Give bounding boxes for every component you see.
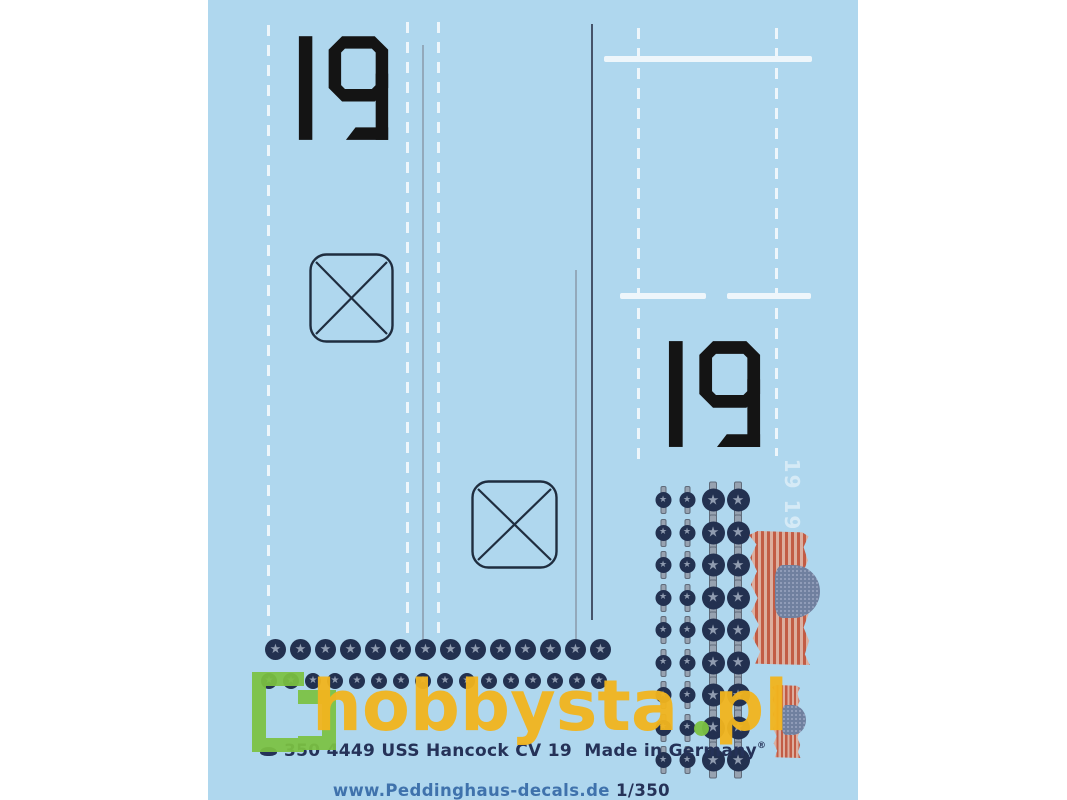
insignia-star-disc: ★: [702, 489, 725, 512]
star-insignia: ★: [315, 639, 336, 660]
deck-dashed-line-center-1: [406, 22, 409, 640]
insignia-star-disc: ★: [702, 619, 725, 642]
insignia-star-disc: ★: [727, 521, 750, 544]
star-insignia: ★: [540, 639, 561, 660]
star-insignia: ★: [365, 639, 386, 660]
star-insignia: ★: [265, 639, 286, 660]
deck-solid-line-long: [591, 24, 593, 620]
product-image-canvas: 19 19 ★★★★★★★★★★★★★★ ★★★★★★★★★★★★★★★★ ★★…: [0, 0, 1067, 800]
star-insignia: ★: [440, 639, 461, 660]
national-insignia-small: ★: [655, 551, 672, 579]
deck-dashed-line-right-1: [637, 28, 640, 466]
national-insignia-small: ★: [679, 551, 696, 579]
deck-white-bar-top: [604, 56, 812, 62]
national-insignia-large: ★: [701, 482, 725, 519]
deck-white-bar-mid-left: [620, 293, 706, 299]
insignia-star-disc: ★: [679, 622, 695, 638]
national-insignia-large: ★: [726, 612, 750, 649]
star-insignia: ★: [590, 639, 611, 660]
insignia-star-disc: ★: [679, 590, 695, 606]
insignia-star-disc: ★: [702, 521, 725, 544]
deck-dashed-line-center-2: [437, 22, 440, 640]
footer-scale-text: 1/350: [616, 781, 670, 800]
bracket-left-icon: [252, 672, 304, 752]
deck-dashed-line-right-2: [775, 28, 778, 456]
national-insignia-small: ★: [679, 616, 696, 644]
insignia-star-disc: ★: [727, 489, 750, 512]
star-insignia: ★: [565, 639, 586, 660]
watermark-brand-text: hobbysta: [312, 668, 678, 744]
national-insignia-large: ★: [726, 547, 750, 584]
national-insignia-small: ★: [679, 486, 696, 514]
star-insignia: ★: [490, 639, 511, 660]
star-strip-large: ★★★★★★★★★★★★★★: [265, 639, 611, 660]
hobbysta-watermark: hobbysta pl: [312, 668, 788, 744]
national-insignia-large: ★: [701, 547, 725, 584]
insignia-star-disc: ★: [727, 586, 750, 609]
us-flag-large: [749, 531, 811, 665]
insignia-star-disc: ★: [727, 619, 750, 642]
national-insignia-large: ★: [701, 579, 725, 616]
insignia-star-disc: ★: [655, 590, 671, 606]
watermark-tld-text: pl: [714, 668, 788, 744]
elevator-cross-box-top: [309, 253, 394, 343]
deck-dashed-line-left: [267, 25, 270, 660]
deck-solid-line-mid: [575, 270, 577, 640]
insignia-star-disc: ★: [655, 492, 671, 508]
hull-numeral-19-right: [666, 338, 764, 452]
national-insignia-large: ★: [726, 579, 750, 616]
watermark-dot-icon: [694, 721, 709, 736]
insignia-star-disc: ★: [679, 492, 695, 508]
national-insignia-large: ★: [701, 514, 725, 551]
insignia-star-disc: ★: [679, 557, 695, 573]
insignia-star-disc: ★: [655, 622, 671, 638]
national-insignia-small: ★: [655, 584, 672, 612]
insignia-star-disc: ★: [679, 525, 695, 541]
star-insignia: ★: [415, 639, 436, 660]
footer-website-text: www.Peddinghaus-decals.de: [333, 781, 616, 800]
elevator-cross-box-bottom: [471, 480, 558, 569]
deck-white-bar-mid-right: [727, 293, 811, 299]
footer-website-line: www.Peddinghaus-decals.de 1/350: [296, 762, 670, 800]
deck-solid-line-center: [422, 45, 424, 645]
ghost-hull-numbers: 19 19: [757, 455, 827, 535]
star-insignia: ★: [290, 639, 311, 660]
star-insignia: ★: [515, 639, 536, 660]
star-insignia: ★: [465, 639, 486, 660]
national-insignia-large: ★: [726, 482, 750, 519]
insignia-star-disc: ★: [702, 586, 725, 609]
insignia-star-disc: ★: [702, 554, 725, 577]
star-insignia: ★: [390, 639, 411, 660]
insignia-star-disc: ★: [655, 525, 671, 541]
national-insignia-large: ★: [726, 514, 750, 551]
national-insignia-large: ★: [701, 612, 725, 649]
decal-sheet: 19 19 ★★★★★★★★★★★★★★ ★★★★★★★★★★★★★★★★ ★★…: [208, 0, 858, 800]
national-insignia-small: ★: [679, 584, 696, 612]
flag-star-canton: [775, 565, 820, 619]
star-insignia: ★: [340, 639, 361, 660]
insignia-star-disc: ★: [727, 554, 750, 577]
national-insignia-small: ★: [655, 486, 672, 514]
insignia-star-disc: ★: [655, 557, 671, 573]
hull-numeral-19-left: [296, 34, 392, 144]
national-insignia-small: ★: [679, 519, 696, 547]
national-insignia-small: ★: [655, 519, 672, 547]
national-insignia-small: ★: [655, 616, 672, 644]
